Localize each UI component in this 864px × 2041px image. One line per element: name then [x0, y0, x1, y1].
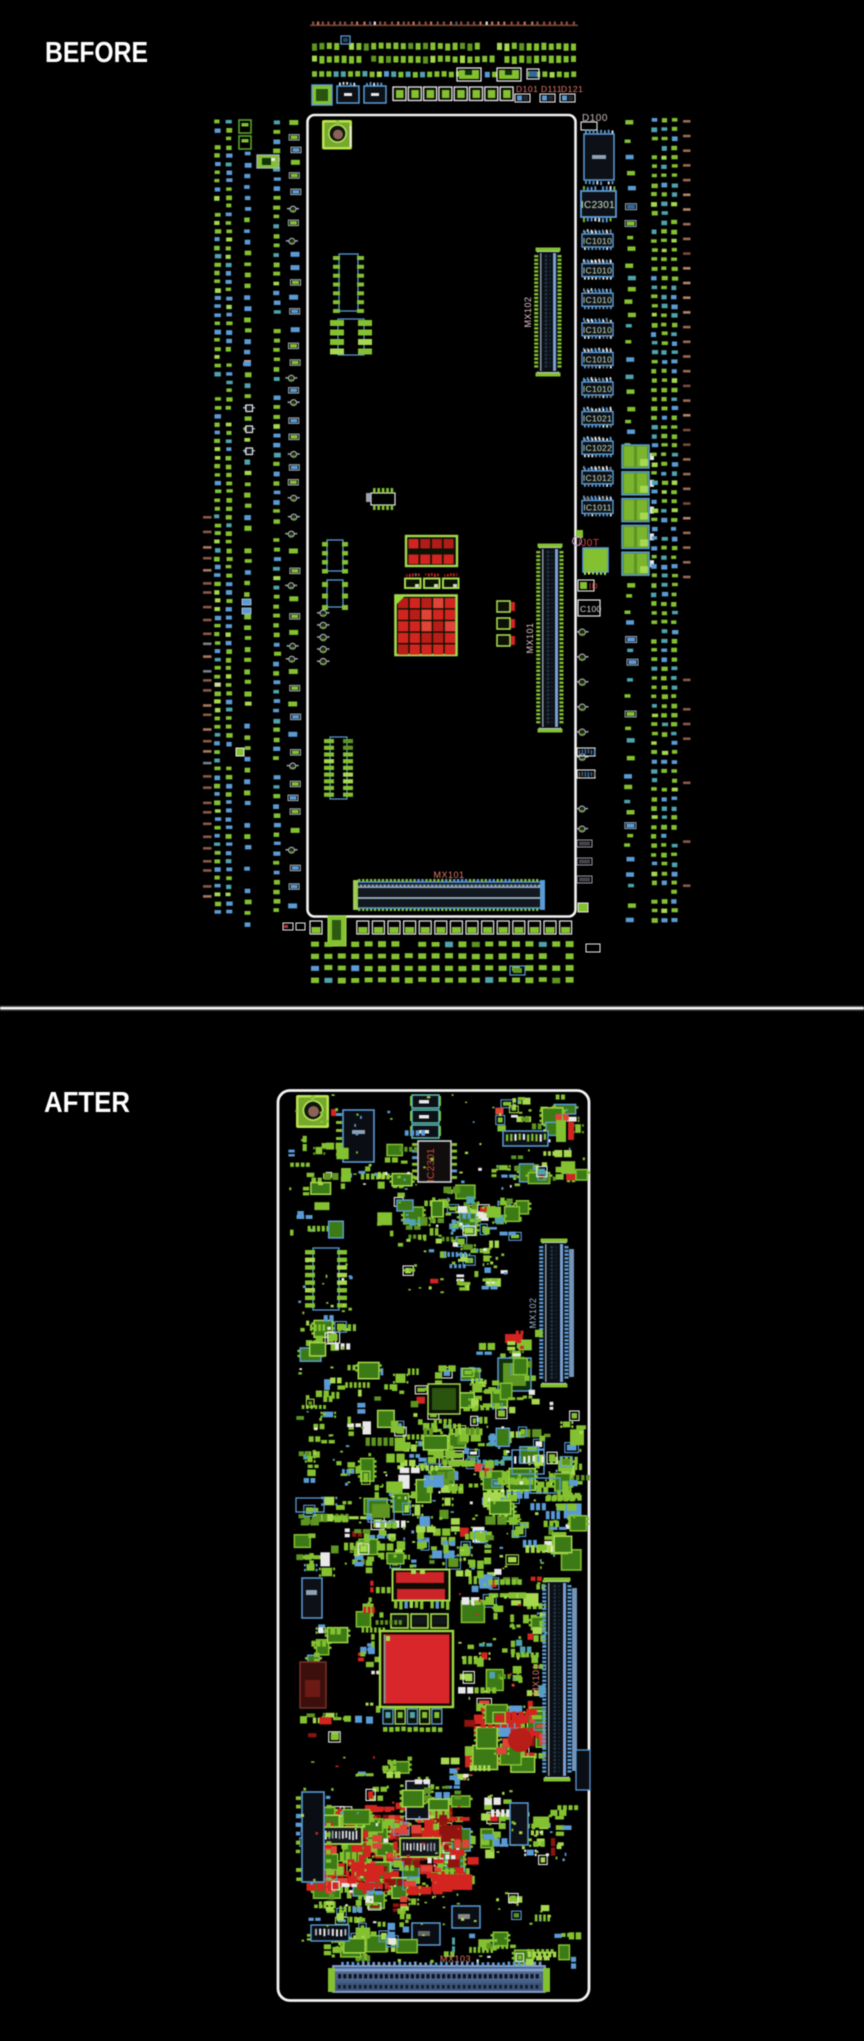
svg-text:MX101: MX101	[433, 870, 464, 880]
svg-text:ID: ID	[589, 582, 598, 591]
svg-text:MX101: MX101	[525, 622, 535, 653]
svg-text:D101: D101	[516, 84, 538, 94]
svg-text:IC1010: IC1010	[583, 295, 612, 305]
svg-text:IC2301: IC2301	[581, 200, 615, 211]
svg-text:IC1011: IC1011	[583, 502, 612, 512]
svg-text:IC1021: IC1021	[583, 414, 612, 424]
svg-text:AFTER: AFTER	[44, 1087, 130, 1119]
svg-text:IC1010: IC1010	[583, 236, 612, 246]
svg-text:IC1022: IC1022	[583, 443, 612, 453]
svg-text:IC1012: IC1012	[583, 473, 612, 483]
svg-text:C100: C100	[580, 604, 602, 614]
svg-text:D111: D111	[541, 84, 562, 94]
svg-text:IC1010: IC1010	[583, 384, 612, 394]
svg-text:MX101: MX101	[531, 1664, 541, 1695]
svg-text:IC1010: IC1010	[583, 266, 612, 276]
svg-text:IC2301: IC2301	[426, 1148, 437, 1182]
svg-text:D121: D121	[561, 84, 583, 94]
svg-text:IC1010: IC1010	[583, 325, 612, 335]
svg-text:IC1010: IC1010	[583, 354, 612, 364]
svg-text:MX102: MX102	[523, 296, 533, 327]
svg-text:MX102: MX102	[528, 1297, 538, 1328]
svg-text:BEFORE: BEFORE	[45, 37, 148, 69]
